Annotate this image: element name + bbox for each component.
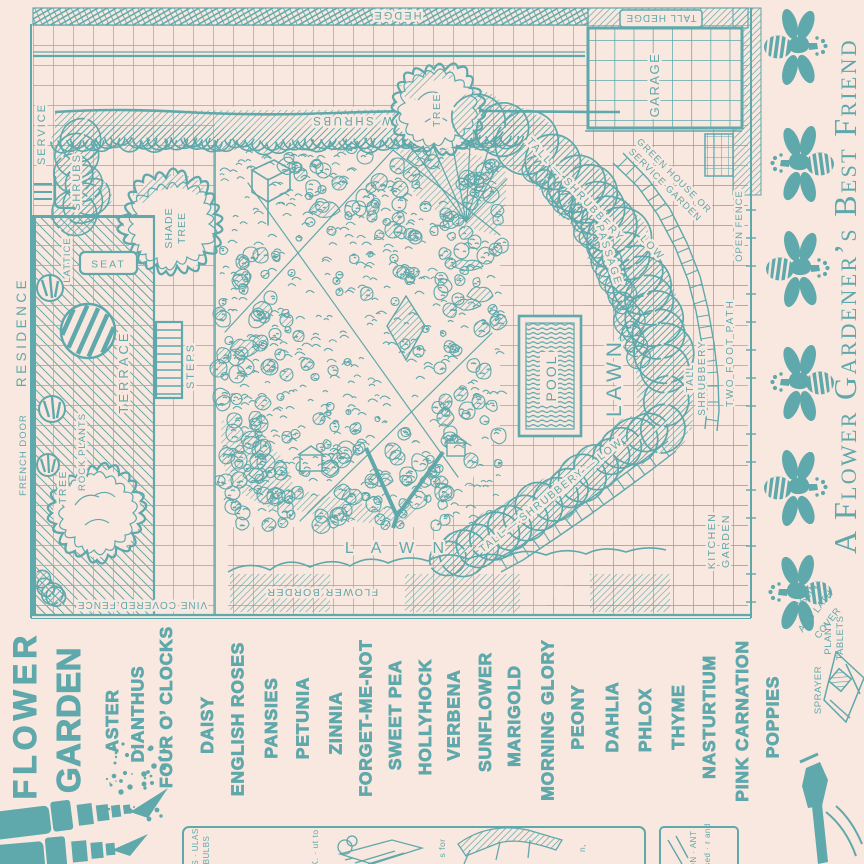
svg-text:THYME: THYME	[668, 684, 688, 749]
svg-text:ON · ANT: ON · ANT	[689, 831, 698, 864]
svg-text:PEONY: PEONY	[568, 684, 588, 749]
svg-text:ZINNIA: ZINNIA	[326, 691, 346, 754]
svg-text:PINK CARNATION: PINK CARNATION	[732, 640, 752, 802]
svg-text:TALL: TALL	[685, 363, 696, 392]
svg-text:TALL HEDGE: TALL HEDGE	[625, 12, 696, 23]
svg-text:OPEN FENCE: OPEN FENCE	[734, 190, 745, 262]
svg-text:HEDGE: HEDGE	[372, 9, 421, 21]
svg-text:DIANTHUS: DIANTHUS	[128, 666, 148, 763]
svg-text:A Flower Gardener’s Best Frien: A Flower Gardener’s Best Friend	[827, 38, 863, 554]
svg-text:TWO FOOT PATH: TWO FOOT PATH	[725, 299, 736, 407]
svg-text:POOL: POOL	[543, 355, 559, 402]
svg-text:SHRUBS: SHRUBS	[71, 153, 83, 211]
svg-text:LAWN: LAWN	[603, 337, 626, 417]
svg-text:eased · r and: eased · r and	[703, 823, 712, 864]
svg-text:SPRAYER: SPRAYER	[813, 666, 824, 714]
svg-text:VINE COVERED FENCE: VINE COVERED FENCE	[77, 599, 207, 610]
svg-text:MORNING GLORY: MORNING GLORY	[538, 639, 558, 800]
svg-text:MARIGOLD: MARIGOLD	[504, 665, 524, 767]
svg-text:ENGLISH ROSES: ENGLISH ROSES	[228, 642, 248, 796]
svg-text:PHLOX: PHLOX	[635, 688, 655, 752]
svg-text:GARDEN: GARDEN	[50, 647, 87, 793]
svg-text:S · ULAS: S · ULAS	[191, 828, 200, 864]
svg-text:GARDEN: GARDEN	[720, 514, 732, 568]
svg-text:BULBS: BULBS	[202, 836, 211, 864]
svg-text:FRENCH DOOR: FRENCH DOOR	[18, 414, 29, 496]
svg-text:TABLETS: TABLETS	[835, 615, 846, 660]
svg-text:K. · ut to: K. · ut to	[310, 829, 320, 864]
svg-text:VERBENA: VERBENA	[444, 669, 464, 760]
svg-text:HOLLYHOCK: HOLLYHOCK	[415, 659, 435, 775]
svg-text:TERRACE: TERRACE	[116, 330, 131, 413]
svg-text:s for: s for	[437, 838, 447, 857]
svg-text:NASTURTIUM: NASTURTIUM	[699, 655, 719, 779]
svg-text:FOUR O’ CLOCKS: FOUR O’ CLOCKS	[156, 626, 176, 788]
svg-text:SHRUBBERY: SHRUBBERY	[697, 340, 708, 416]
svg-text:RESIDENCE: RESIDENCE	[14, 277, 29, 387]
svg-text:SWEET PEA: SWEET PEA	[385, 660, 405, 770]
svg-text:PANSIES: PANSIES	[261, 677, 281, 758]
svg-text:DAISY: DAISY	[197, 696, 217, 753]
svg-text:STEPS: STEPS	[185, 343, 197, 389]
svg-text:PLANT: PLANT	[823, 621, 834, 654]
svg-text:POPPIES: POPPIES	[763, 676, 783, 758]
svg-text:ROCK PLANTS: ROCK PLANTS	[77, 413, 88, 491]
svg-text:L A W N: L A W N	[345, 540, 451, 557]
svg-text:FORGET-ME-NOT: FORGET-ME-NOT	[356, 639, 376, 796]
svg-text:FLOWER: FLOWER	[7, 631, 43, 800]
svg-text:SEAT: SEAT	[91, 259, 126, 271]
svg-text:LATTICE: LATTICE	[62, 237, 73, 282]
svg-text:n,: n,	[577, 844, 587, 852]
svg-text:TREE: TREE	[176, 212, 188, 244]
svg-text:SERVICE: SERVICE	[36, 103, 48, 165]
svg-text:TREE: TREE	[57, 470, 69, 504]
svg-text:GARAGE: GARAGE	[647, 53, 662, 118]
svg-text:DAHLIA: DAHLIA	[602, 682, 622, 753]
svg-text:SUNFLOWER: SUNFLOWER	[475, 652, 495, 772]
svg-text:KITCHEN: KITCHEN	[706, 513, 718, 570]
svg-text:TREE: TREE	[431, 93, 443, 127]
svg-text:SHADE: SHADE	[163, 207, 175, 248]
svg-text:ASTER: ASTER	[102, 689, 122, 752]
svg-text:PETUNIA: PETUNIA	[293, 677, 313, 759]
svg-text:FLOWER BORDER: FLOWER BORDER	[266, 586, 378, 598]
